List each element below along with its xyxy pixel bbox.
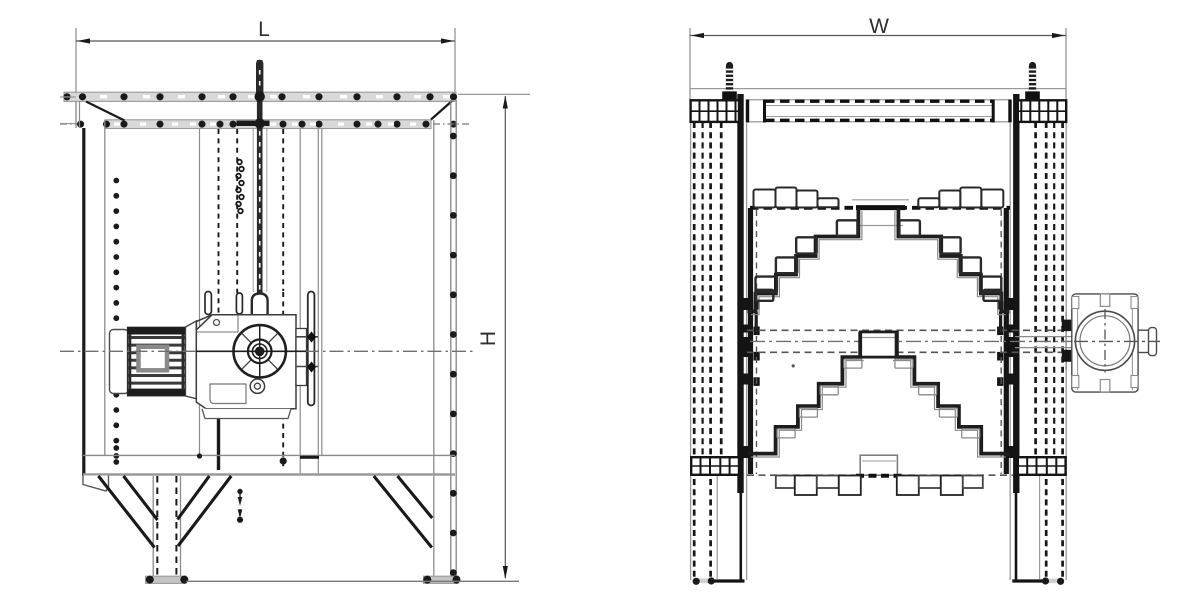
svg-text:W: W <box>869 15 889 38</box>
svg-text:L: L <box>258 18 270 41</box>
svg-text:H: H <box>477 331 500 346</box>
